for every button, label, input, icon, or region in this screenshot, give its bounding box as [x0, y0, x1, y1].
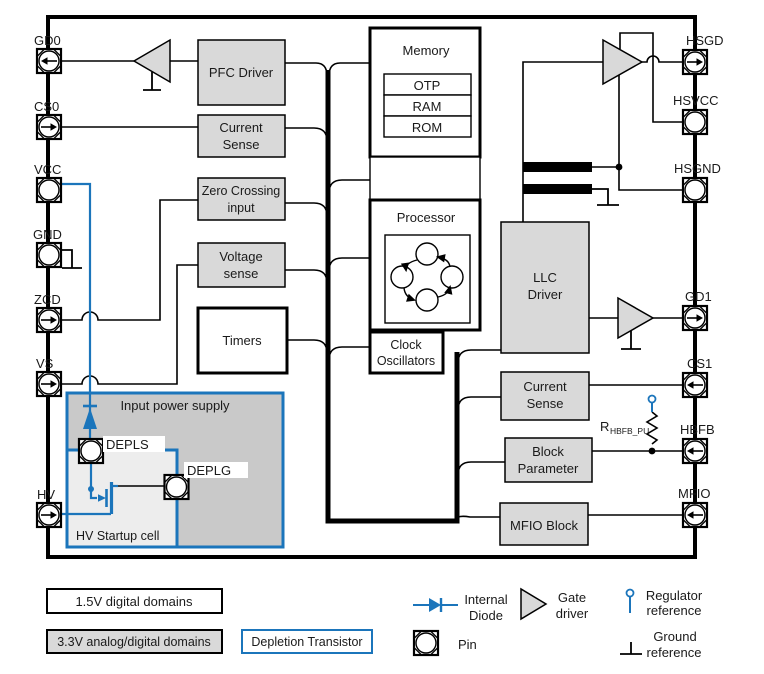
- level-shift-bar: [523, 184, 592, 194]
- pin-label-hsgd: HSGD: [686, 33, 724, 48]
- wire-llc-hsdriver: [523, 62, 603, 222]
- pin-label-hbfb: HBFB: [680, 422, 715, 437]
- zero-crossing-label1: Zero Crossing: [202, 184, 281, 198]
- pin-gd0: [37, 49, 61, 73]
- legend-1v5-label: 1.5V digital domains: [75, 594, 193, 609]
- pin-gd1: [683, 306, 707, 330]
- wire-bus-mfio: [456, 516, 500, 519]
- gate-driver-icon: [521, 589, 546, 619]
- legend-gate-label1: Gate: [558, 590, 586, 605]
- level-shift-bar: [523, 162, 592, 172]
- memory-label: Memory: [403, 43, 450, 58]
- current-sense-l-label1: Current: [219, 120, 263, 135]
- junction-dot: [616, 164, 623, 171]
- internal-diode-icon: [413, 598, 458, 612]
- pin-label-zcd: ZCD: [34, 292, 61, 307]
- block-diagram: Input power supply HV Startup cell: [0, 0, 764, 674]
- wire-bus-cs1: [458, 397, 501, 410]
- regulator-reference-icon: [649, 396, 656, 403]
- llc-label2: Driver: [528, 287, 563, 302]
- current-sense-l-label2: Sense: [223, 137, 260, 152]
- gate-driver-icon: [618, 298, 653, 338]
- pin-hbfb: [683, 439, 707, 463]
- block-param-label2: Parameter: [518, 461, 579, 476]
- right-pins: HSGD HSVCC HSGND GD1 CS1 HBFB MFIO: [673, 33, 724, 527]
- legend-gate-label2: driver: [556, 606, 589, 621]
- pin-hsgnd: [683, 178, 707, 202]
- pin-deplg: [165, 475, 189, 499]
- mfio-block-label: MFIO Block: [510, 518, 578, 533]
- pin-label-gd1: GD1: [685, 289, 712, 304]
- pin-hsgd: [683, 50, 707, 74]
- pin-icon: [414, 631, 438, 655]
- pin-hsvcc: [683, 110, 707, 134]
- diagram-canvas: Input power supply HV Startup cell: [0, 0, 764, 674]
- pin-label-hv: HV: [37, 487, 55, 502]
- rom-label: ROM: [412, 120, 442, 135]
- legend-depletion-label: Depletion Transistor: [251, 635, 362, 649]
- wire-bus-clock: [329, 347, 370, 360]
- legend-ground-label2: reference: [647, 645, 702, 660]
- left-wires: [61, 40, 198, 384]
- gd1-driver: [589, 298, 683, 349]
- wire-bootstrap-hsvcc: [620, 33, 683, 122]
- pin-label-hsgnd: HSGND: [674, 161, 721, 176]
- legend-regulator-label2: reference: [647, 603, 702, 618]
- gate-driver-icon: [603, 40, 642, 84]
- highside-driver-network: [523, 33, 683, 222]
- resistor-label: R: [600, 419, 609, 434]
- wire-vs-block: [61, 265, 198, 384]
- right-lower-wires: R HBFB_PU: [588, 385, 683, 515]
- zero-crossing-label2: input: [227, 201, 255, 215]
- pin-zcd: [37, 308, 61, 332]
- pin-mfio: [683, 503, 707, 527]
- voltage-sense-label1: Voltage: [219, 249, 262, 264]
- wire-bus-blockparam: [458, 462, 505, 475]
- block-param-label1: Block: [532, 444, 564, 459]
- voltage-sense-label2: sense: [224, 266, 259, 281]
- pin-label-vcc: VCC: [34, 162, 61, 177]
- wire-bus-midbox: [329, 180, 370, 193]
- input-power-supply-label: Input power supply: [120, 398, 230, 413]
- pin-label-gd0: GD0: [34, 33, 61, 48]
- clock-label2: Oscillators: [377, 354, 435, 368]
- legend-diode-label1: Internal: [464, 592, 507, 607]
- pin-label-cs0: CS0: [34, 99, 59, 114]
- wire-zc-bus: [285, 203, 327, 216]
- wire-timers-bus: [287, 340, 327, 353]
- processor-label: Processor: [397, 210, 456, 225]
- regulator-reference-icon: [627, 590, 634, 614]
- ground-reference-icon: [61, 250, 82, 268]
- pin-vs: [37, 372, 61, 396]
- wire-hsgd-out: [642, 56, 683, 62]
- ground-reference-icon: [592, 189, 619, 205]
- legend-regulator-label1: Regulator: [646, 588, 703, 603]
- wire-bus-processor: [329, 258, 370, 271]
- legend-3v3-label: 3.3V analog/digital domains: [57, 635, 211, 649]
- pin-label-vs: VS: [36, 356, 54, 371]
- wire-vsense-bus: [285, 270, 327, 283]
- current-sense-r-label1: Current: [523, 379, 567, 394]
- pfc-driver-label: PFC Driver: [209, 65, 274, 80]
- ram-label: RAM: [413, 99, 442, 114]
- junction-dot: [649, 448, 656, 455]
- pin-label-hsvcc: HSVCC: [673, 93, 719, 108]
- input-power-supply-domain: Input power supply HV Startup cell: [67, 393, 283, 547]
- legend-diode-label2: Diode: [469, 608, 503, 623]
- pin-gnd: [37, 243, 61, 267]
- pin-label-mfio: MFIO: [678, 486, 711, 501]
- ground-reference-icon: [620, 642, 642, 654]
- hv-startup-cell-label: HV Startup cell: [76, 529, 159, 543]
- llc-label1: LLC: [533, 270, 557, 285]
- legend-ground-label1: Ground: [653, 629, 696, 644]
- pin-cs0: [37, 115, 61, 139]
- legend-pin-label: Pin: [458, 637, 477, 652]
- depls-label: DEPLS: [106, 437, 149, 452]
- wire-bus-llc: [458, 350, 501, 363]
- pin-label-gnd: GND: [33, 227, 62, 242]
- wire-hsgnd: [592, 167, 683, 190]
- deplg-label: DEPLG: [187, 463, 231, 478]
- clock-label1: Clock: [390, 338, 422, 352]
- pin-hv: [37, 503, 61, 527]
- legend: 1.5V digital domains 3.3V analog/digital…: [47, 588, 703, 660]
- timers-label: Timers: [222, 333, 262, 348]
- wire-cs0-bus: [285, 128, 327, 141]
- block-buffer: [370, 157, 480, 200]
- otp-label: OTP: [414, 78, 441, 93]
- pin-cs1: [683, 373, 707, 397]
- pin-label-cs1: CS1: [687, 356, 712, 371]
- pin-vcc: [37, 178, 61, 202]
- current-sense-r-label2: Sense: [527, 396, 564, 411]
- pin-depls: [79, 439, 103, 463]
- resistor-subscript: HBFB_PU: [610, 426, 649, 436]
